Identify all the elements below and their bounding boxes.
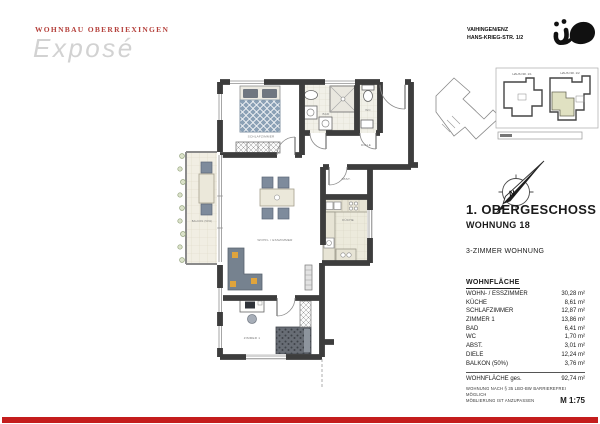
logo-dot	[554, 22, 559, 27]
bath-sink	[305, 91, 318, 100]
dining-set	[260, 177, 294, 219]
room-label-zimmer1: ZIMMER 1	[244, 336, 260, 340]
table-row: WC 1,70 m²	[466, 333, 585, 342]
address-street: HANS-KRIEG-STR. 1/2	[467, 35, 523, 43]
planting	[178, 154, 186, 263]
row-value: 12,87 m²	[561, 307, 585, 316]
document-title: Exposé	[33, 33, 135, 64]
shelf	[305, 265, 312, 290]
desk	[240, 299, 264, 312]
row-label: ABST.	[466, 342, 483, 351]
room-label-abst: ABST.	[341, 177, 351, 181]
table-row: ABST. 3,01 m²	[466, 342, 585, 351]
row-label: DIELE	[466, 351, 483, 360]
washing-machine	[304, 106, 317, 119]
total-value: 92,74 m²	[561, 375, 585, 384]
row-value: 3,01 m²	[565, 342, 585, 351]
table-row: WOHN- / ESSZIMMER 30,28 m²	[466, 290, 585, 299]
floor-plan: SCHLAFZIMMER BAD WC DIELE ABST. KÜCHE WO…	[176, 70, 440, 392]
room-label-balkon: BALKON (50%)	[192, 219, 213, 223]
toilet	[362, 85, 374, 102]
row-value: 8,61 m²	[565, 299, 585, 308]
wardrobe-zimmer1	[300, 301, 311, 327]
wardrobe	[236, 142, 280, 153]
row-value: 1,70 m²	[565, 333, 585, 342]
room-label-bad: BAD	[323, 112, 331, 116]
row-value: 12,24 m²	[561, 351, 585, 360]
balcony-set	[199, 162, 214, 215]
shower	[330, 86, 356, 112]
row-value: 13,86 m²	[561, 316, 585, 325]
total-label: WOHNFLÄCHE ges.	[466, 375, 522, 384]
footer-accent-bar	[2, 417, 598, 423]
site-plan: HAUS NR. 1/1 HAUS NR. 1/2	[430, 66, 600, 150]
row-value: 3,76 m²	[565, 360, 585, 369]
street-mark	[500, 134, 512, 137]
row-label: KÜCHE	[466, 299, 487, 308]
wc-sink	[361, 120, 373, 128]
row-value: 30,28 m²	[561, 290, 585, 299]
table-row: BAD 6,41 m²	[466, 325, 585, 334]
row-label: ZIMMER 1	[466, 316, 495, 325]
room-label-wohn: WOHN- / ESSZIMMER	[257, 238, 293, 242]
desk-chair	[248, 315, 257, 324]
table-row: ZIMMER 1 13,86 m²	[466, 316, 585, 325]
address-block: VAIHINGEN/ENZ HANS-KRIEG-STR. 1/2	[467, 27, 523, 42]
haus-2-label: HAUS NR. 1/2	[560, 71, 580, 75]
table-row: SCHLAFZIMMER 12,87 m²	[466, 307, 585, 316]
table-row: BALKON (50%) 3,76 m²	[466, 360, 585, 369]
address-city: VAIHINGEN/ENZ	[467, 27, 523, 35]
unit-number: WOHNUNG 18	[466, 220, 530, 230]
existing-building-outline	[436, 78, 500, 139]
unit-type: 3-ZIMMER WOHNUNG	[466, 248, 544, 255]
floor-title: 1. OBERGESCHOSS	[466, 202, 596, 217]
area-table: WOHN- / ESSZIMMER 30,28 m² KÜCHE 8,61 m²…	[466, 290, 585, 384]
row-value: 6,41 m²	[565, 325, 585, 334]
dryer	[319, 117, 332, 130]
logo-blob	[570, 22, 595, 44]
row-label: SCHLAFZIMMER	[466, 307, 513, 316]
bed	[240, 86, 280, 132]
row-label: WC	[466, 333, 476, 342]
logo-dot	[562, 19, 567, 24]
expose-page: WOHNBAU OBERRIEXINGEN Exposé VAIHINGEN/E…	[0, 0, 600, 424]
company-logo-icon	[549, 13, 599, 51]
sofa	[228, 248, 262, 290]
area-table-title: WOHNFLÄCHE	[466, 279, 520, 289]
row-label: BALKON (50%)	[466, 360, 508, 369]
scale-label: M 1:75	[466, 396, 585, 405]
row-label: WOHN- / ESSZIMMER	[466, 290, 528, 299]
room-label-diele: DIELE	[361, 143, 371, 147]
table-row: DIELE 12,24 m²	[466, 351, 585, 360]
bed-zimmer1	[276, 327, 311, 354]
table-row: KÜCHE 8,61 m²	[466, 299, 585, 308]
room-label-schlafzimmer: SCHLAFZIMMER	[248, 135, 275, 139]
table-total-row: WOHNFLÄCHE ges. 92,74 m²	[466, 372, 585, 384]
haus-1-label: HAUS NR. 1/1	[512, 72, 532, 76]
room-label-wc: WC	[365, 108, 371, 112]
row-label: BAD	[466, 325, 478, 334]
room-label-kueche: KÜCHE	[342, 218, 354, 222]
